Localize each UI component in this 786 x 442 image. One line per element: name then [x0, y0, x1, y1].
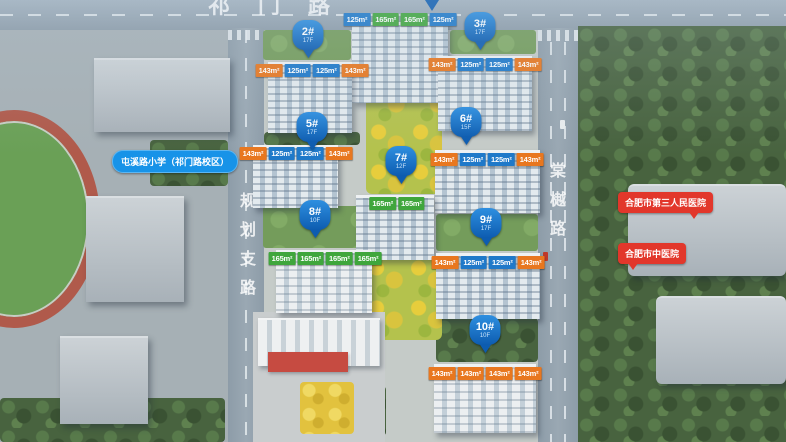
unit-tag: 125m² — [488, 153, 515, 166]
aerial-site-plan: 祁门路 规划支路 棠樾路 125m² 165m² 165m² 125m² 143… — [0, 0, 786, 442]
offsite-building-hospital-tcm — [656, 296, 786, 384]
pin-building-7[interactable]: 7# 12F — [386, 146, 417, 184]
unit-tag: 143m² — [457, 367, 484, 380]
unit-tag: 125m² — [486, 58, 513, 71]
crosswalk-north-east — [538, 30, 578, 41]
pin-bubble: 10# 10F — [470, 315, 501, 345]
landmark-label-hospital-third[interactable]: 合肥市第三人民医院 — [618, 192, 713, 213]
unit-tag: 125m² — [344, 13, 371, 26]
pin-tail-icon — [479, 344, 491, 353]
unit-tag: 165m² — [269, 252, 296, 265]
pin-tail-icon — [480, 237, 492, 246]
pin-tail-icon — [474, 41, 486, 50]
pin-building-1-partial[interactable] — [425, 0, 439, 11]
landmark-label-hospital-tcm[interactable]: 合肥市中医院 — [618, 243, 686, 264]
unit-tag: 125m² — [460, 256, 487, 269]
building-number: 2# — [302, 26, 314, 38]
pin-tail-icon — [306, 141, 318, 150]
unit-tag: 165m² — [369, 197, 396, 210]
road-label-west: 规划支路 — [233, 192, 257, 308]
road-label-north: 祁门路 — [208, 0, 358, 20]
unit-tag: 143m² — [515, 58, 542, 71]
building-floors: 17F — [303, 38, 313, 45]
unit-tag: 143m² — [517, 153, 544, 166]
unit-tag: 125m² — [268, 147, 295, 160]
building-number: 7# — [395, 152, 407, 164]
pin-tail-icon — [460, 136, 472, 145]
unit-tags-building-9: 143m² 125m² 125m² 143m² — [432, 256, 545, 269]
building-number: 3# — [474, 18, 486, 30]
unit-tag: 125m² — [457, 58, 484, 71]
pin-building-3[interactable]: 3# 17F — [465, 12, 496, 50]
offsite-building-school-south — [86, 196, 184, 302]
unit-tag: 165m² — [326, 252, 353, 265]
pin-bubble: 8# 10F — [300, 200, 331, 230]
pin-building-5[interactable]: 5# 17F — [297, 112, 328, 150]
car-white — [560, 120, 565, 129]
offsite-building-southwest — [60, 336, 148, 424]
unit-tag: 143m² — [429, 367, 456, 380]
pin-building-9[interactable]: 9# 17F — [471, 208, 502, 246]
pin-tail-icon — [302, 49, 314, 58]
unit-tag: 165m² — [297, 252, 324, 265]
building-number: 9# — [480, 214, 492, 226]
unit-tag: 143m² — [240, 147, 267, 160]
pin-bubble: 7# 12F — [386, 146, 417, 176]
pin-building-8[interactable]: 8# 10F — [300, 200, 331, 238]
unit-tag: 125m² — [313, 64, 340, 77]
pin-bubble: 3# 17F — [465, 12, 496, 42]
pin-bubble: 9# 17F — [471, 208, 502, 238]
pin-building-2[interactable]: 2# 17F — [293, 20, 324, 58]
pin-bubble: 6# 15F — [451, 107, 482, 137]
unit-tag: 125m² — [284, 64, 311, 77]
building-floors: 15F — [461, 125, 471, 132]
unit-tag: 143m² — [326, 147, 353, 160]
building-number: 8# — [309, 206, 321, 218]
unit-tag: 125m² — [489, 256, 516, 269]
unit-tag: 165m² — [398, 197, 425, 210]
unit-tag: 165m² — [355, 252, 382, 265]
unit-tag: 143m² — [432, 256, 459, 269]
unit-tags-building-2: 143m² 125m² 125m² 143m² — [256, 64, 369, 77]
unit-tags-building-10: 143m² 143m² 143m² 143m² — [429, 367, 542, 380]
pin-bubble: 2# 17F — [293, 20, 324, 50]
building-floors: 10F — [480, 333, 490, 340]
building-number: 10# — [476, 321, 494, 333]
unit-tag: 125m² — [459, 153, 486, 166]
unit-tag: 165m² — [372, 13, 399, 26]
building-floors: 17F — [481, 226, 491, 233]
unit-tag: 143m² — [518, 256, 545, 269]
building-floors: 10F — [310, 218, 320, 225]
building-floors: 17F — [475, 30, 485, 37]
unit-tags-building-3: 143m² 125m² 125m² 143m² — [429, 58, 542, 71]
building-floors: 12F — [396, 164, 406, 171]
kindergarten-red-roof — [268, 352, 348, 372]
unit-tag: 165m² — [401, 13, 428, 26]
pin-building-10[interactable]: 10# 10F — [470, 315, 501, 353]
unit-tags-building-6: 143m² 125m² 125m² 143m² — [431, 153, 544, 166]
offsite-building-school-north — [94, 58, 230, 132]
unit-tag: 143m² — [515, 367, 542, 380]
unit-tags-building-7: 165m² 165m² — [369, 197, 424, 210]
unit-tag: 143m² — [342, 64, 369, 77]
pin-bubble: 5# 17F — [297, 112, 328, 142]
unit-tags-building-1: 125m² 165m² 165m² 125m² — [344, 13, 457, 26]
road-label-east: 棠樾路 — [543, 162, 567, 249]
unit-tag: 143m² — [429, 58, 456, 71]
landmark-label-school[interactable]: 屯溪路小学（祁门路校区） — [112, 150, 238, 173]
unit-tag: 143m² — [486, 367, 513, 380]
unit-tags-building-8: 165m² 165m² 165m² 165m² — [269, 252, 382, 265]
unit-tag: 125m² — [430, 13, 457, 26]
unit-tag: 143m² — [431, 153, 458, 166]
pin-tail-icon — [395, 175, 407, 184]
building-number: 5# — [306, 118, 318, 130]
kindergarten-playground — [300, 382, 354, 434]
building-number: 6# — [460, 113, 472, 125]
pin-building-6[interactable]: 6# 15F — [451, 107, 482, 145]
pin-tail-icon — [309, 229, 321, 238]
building-floors: 17F — [307, 130, 317, 137]
crosswalk-north-west — [228, 30, 264, 40]
unit-tag: 143m² — [256, 64, 283, 77]
